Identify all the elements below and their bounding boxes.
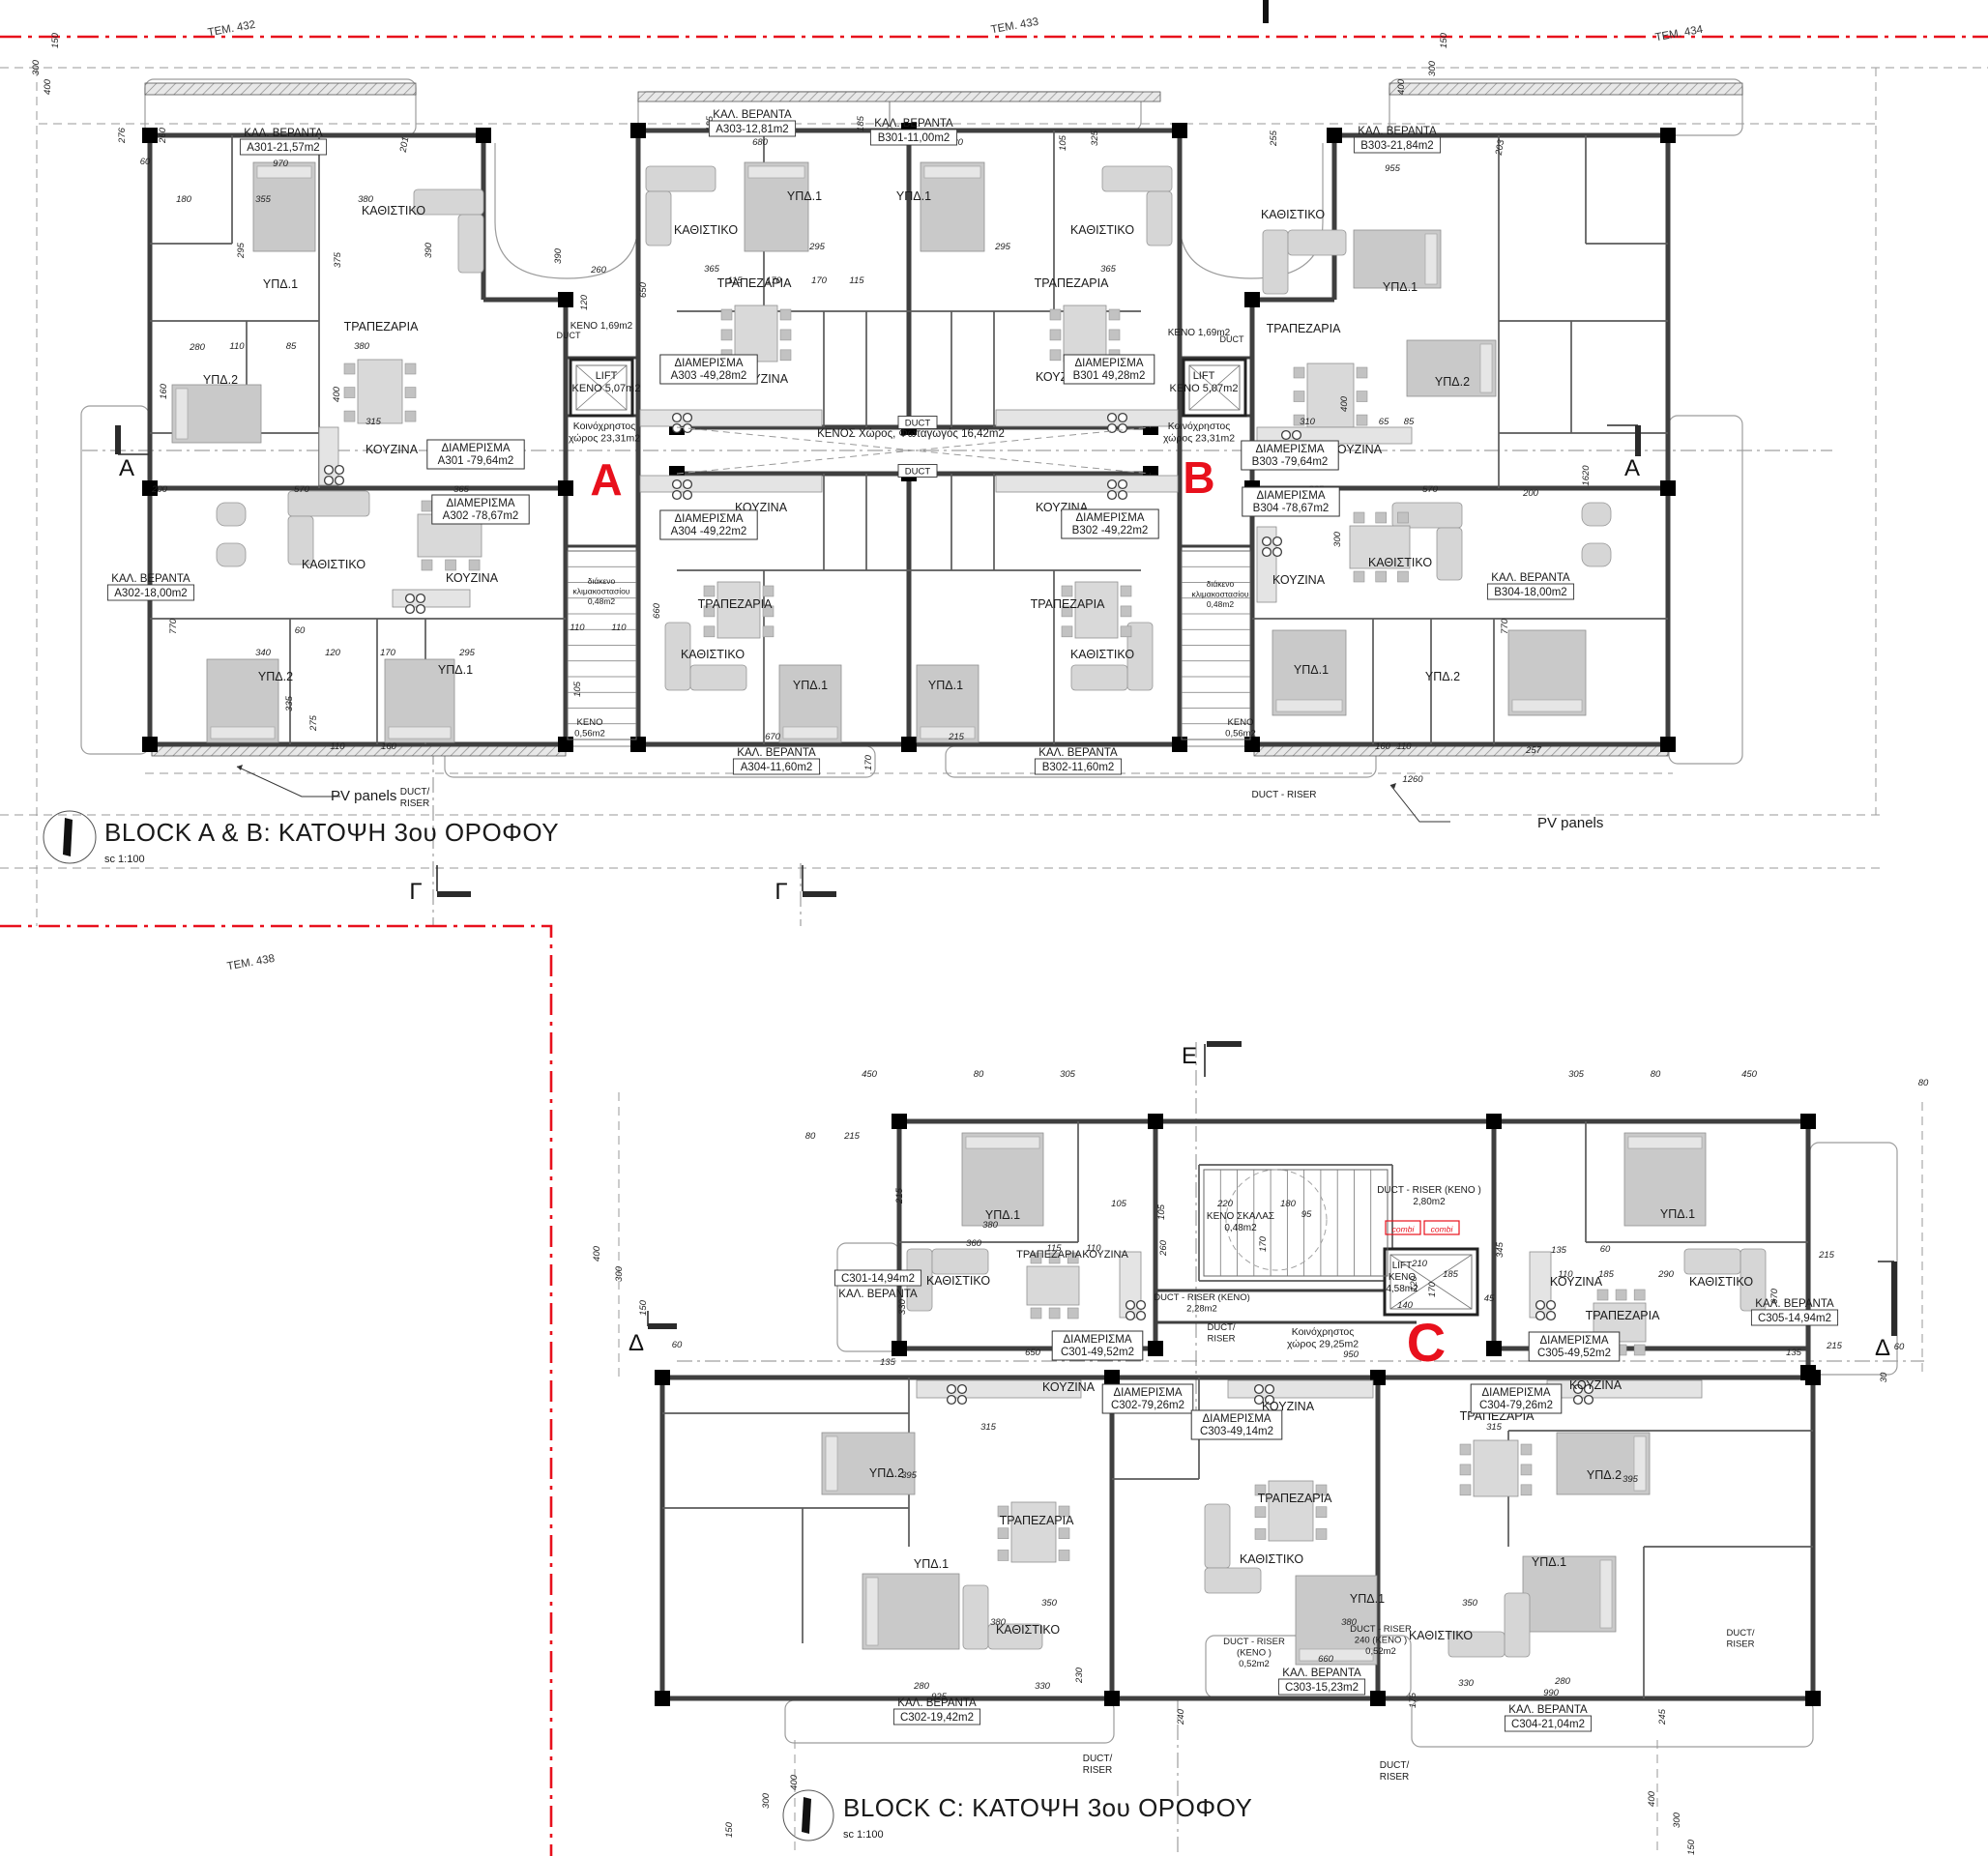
dimension-label: 400 bbox=[1396, 78, 1407, 95]
veranda-code: A304-11,60m2 bbox=[741, 762, 813, 773]
dimension-label: 180 bbox=[1280, 1199, 1297, 1209]
utility-label: DUCT - RISER bbox=[1251, 790, 1316, 800]
dimension-label: 170 bbox=[1427, 1281, 1438, 1297]
dimension-label: 60 bbox=[1600, 1244, 1611, 1255]
property-boundary bbox=[0, 926, 551, 1856]
dimension-label: 203 bbox=[1494, 138, 1507, 157]
dimension-label: 240 bbox=[1176, 1708, 1186, 1725]
dimension-label: 150 bbox=[724, 1821, 735, 1838]
apartment-label: ΔΙΑΜΕΡΙΣΜΑ bbox=[674, 358, 743, 369]
kitchen-counter bbox=[996, 410, 1178, 426]
apartment-label: C301-49,52m2 bbox=[1061, 1347, 1134, 1358]
utility-label: KENO bbox=[577, 717, 603, 728]
room-label: ΚΑΘΙΣΤΙΚΟ bbox=[1368, 556, 1432, 569]
dimension-label: 160 bbox=[381, 741, 397, 752]
dimension-label: 210 bbox=[1411, 1259, 1428, 1269]
duct-label: DUCT bbox=[905, 419, 931, 429]
apartment-label: A304 -49,22m2 bbox=[671, 526, 747, 537]
utility-label: DUCT - RISER bbox=[1350, 1624, 1412, 1635]
section-letter: E bbox=[1182, 1043, 1197, 1069]
room-label: ΚΟΥΖΙΝΑ bbox=[365, 443, 419, 456]
room-label: ΤΡΑΠΕΖΑΡΙΑ bbox=[1035, 276, 1110, 290]
utility-label: ΚΕΝΟΣ Χώρος, Φωταγωγός 16,42m2 bbox=[817, 428, 1005, 440]
utility-label: 2,28m2 bbox=[1186, 1304, 1217, 1315]
kitchen-counter bbox=[640, 410, 822, 426]
dimension-label: 215 bbox=[1818, 1250, 1835, 1261]
dimension-label: 180 bbox=[176, 194, 192, 205]
veranda-title: ΚΑΛ. ΒΕΡΑΝΤΑ bbox=[1755, 1298, 1834, 1310]
dimension-label: 295 bbox=[808, 242, 826, 252]
stamp-label: combi bbox=[1431, 1225, 1454, 1234]
apartment-label: ΔΙΑΜΕΡΙΣΜΑ bbox=[441, 443, 510, 454]
room-label: ΤΡΑΠΕΖΑΡΙΑ bbox=[1267, 322, 1342, 335]
armchair bbox=[217, 503, 246, 526]
veranda-title: ΚΑΛ. ΒΕΡΑΝΤΑ bbox=[1491, 572, 1570, 584]
dimension-label: 215 bbox=[1826, 1341, 1843, 1351]
room-label: ΥΠΔ.2 bbox=[869, 1466, 904, 1480]
dimension-label: 105 bbox=[1058, 134, 1068, 151]
apartment-label: ΔΙΑΜΕΡΙΣΜΑ bbox=[1256, 490, 1325, 502]
room-label: ΚΟΥΖΙΝΑ bbox=[1272, 573, 1326, 587]
apartment-label: ΔΙΑΜΕΡΙΣΜΑ bbox=[1539, 1335, 1608, 1347]
veranda-title: ΚΑΛ. ΒΕΡΑΝΤΑ bbox=[244, 128, 323, 139]
dimension-label: 30 bbox=[1879, 1372, 1889, 1382]
dimension-label: 160 bbox=[159, 383, 169, 399]
room-label: ΥΠΔ.1 bbox=[1660, 1207, 1695, 1221]
utility-label: διάκενο bbox=[1207, 579, 1235, 589]
dimension-label: 150 bbox=[1439, 32, 1449, 48]
dimension-label: 290 bbox=[1657, 1269, 1675, 1280]
dimension-label: 325 bbox=[1090, 130, 1100, 146]
apartment-label: A302 -78,67m2 bbox=[443, 510, 519, 522]
dimension-label: 110 bbox=[330, 741, 345, 752]
dimension-label: 365 bbox=[453, 484, 470, 495]
apartment-label: ΔΙΑΜΕΡΙΣΜΑ bbox=[674, 513, 743, 525]
veranda-code: C301-14,94m2 bbox=[841, 1273, 915, 1285]
dimension-label: 315 bbox=[980, 1422, 997, 1433]
label-layer: ΚΑΘΙΣΤΙΚΟΥΠΔ.1ΤΡΑΠΕΖΑΡΙΑΥΠΔ.2ΚΟΥΖΙΝΑΚΑΘΙ… bbox=[107, 16, 1837, 1783]
dimension-label: 60 bbox=[295, 625, 306, 636]
caption-block-c-scale: sc 1:100 bbox=[843, 1829, 1252, 1841]
utility-label: 2,80m2 bbox=[1413, 1197, 1446, 1207]
dimension-label: 305 bbox=[1568, 1069, 1585, 1080]
room-label: ΚΟΥΖΙΝΑ bbox=[1569, 1378, 1623, 1392]
dimension-label: 1260 bbox=[1402, 774, 1423, 785]
dimension-label: 105 bbox=[1156, 1203, 1167, 1220]
room-label: ΚΑΘΙΣΤΙΚΟ bbox=[1689, 1275, 1753, 1289]
utility-label: DUCT bbox=[557, 331, 581, 340]
room-label: ΚΑΘΙΣΤΙΚΟ bbox=[674, 223, 738, 237]
room-label: ΥΠΔ.2 bbox=[1435, 375, 1470, 389]
dimension-label: 95 bbox=[1301, 1209, 1312, 1220]
room-label: ΤΡΑΠΕΖΑΡΙΑ bbox=[1586, 1309, 1661, 1322]
dimension-label: 300 bbox=[1427, 60, 1438, 76]
sofa bbox=[646, 166, 716, 191]
dimension-label: 360 bbox=[966, 1238, 982, 1249]
dimension-label: 200 bbox=[1522, 488, 1539, 499]
dimension-label: 335 bbox=[284, 695, 295, 711]
floor-plan-canvas: 1503004002762606097020118518568068010532… bbox=[0, 0, 1988, 1856]
stamp-label: combi bbox=[1392, 1225, 1416, 1234]
dimension-label: 150 bbox=[50, 32, 61, 48]
sofa bbox=[1205, 1504, 1230, 1568]
veranda-code: B301-11,00m2 bbox=[878, 132, 950, 144]
room-label: ΥΠΔ.1 bbox=[914, 1557, 949, 1571]
apartment-label: ΔΙΑΜΕΡΙΣΜΑ bbox=[1075, 512, 1144, 524]
dimension-label: 450 bbox=[1741, 1069, 1758, 1080]
dimension-label: 990 bbox=[1543, 1688, 1560, 1698]
room-label: ΥΠΔ.1 bbox=[985, 1208, 1020, 1222]
dimension-label: 1620 bbox=[1581, 465, 1592, 486]
dimension-label: 105 bbox=[572, 681, 583, 697]
room-label: ΤΡΑΠΕΖΑΡΙΑ bbox=[1016, 1249, 1082, 1261]
utility-label: διάκενο bbox=[588, 576, 616, 586]
room-label: ΥΠΔ.1 bbox=[1294, 663, 1329, 677]
apartment-label: ΔΙΑΜΕΡΙΣΜΑ bbox=[446, 498, 514, 509]
utility-label: DUCT/ bbox=[1726, 1628, 1754, 1638]
dimension-label: 85 bbox=[1404, 417, 1415, 427]
dimension-label: 330 bbox=[897, 1298, 908, 1315]
dimension-label: 355 bbox=[255, 194, 272, 205]
veranda-code: A301-21,57m2 bbox=[247, 142, 319, 154]
utility-label: κλιμακοστασίου bbox=[1192, 590, 1249, 599]
dimension-label: 215 bbox=[843, 1131, 861, 1142]
dimension-label: 400 bbox=[592, 1245, 602, 1261]
dimension-label: 955 bbox=[1385, 163, 1401, 174]
utility-label: 240 (KENO ) bbox=[1355, 1636, 1407, 1646]
utility-label: 0,48m2 bbox=[1207, 599, 1235, 609]
room-label: ΥΠΔ.2 bbox=[1587, 1468, 1622, 1482]
dimension-label: 110 bbox=[229, 341, 245, 352]
room-label: ΤΡΑΠΕΖΑΡΙΑ bbox=[1000, 1514, 1075, 1527]
room-label: ΚΑΘΙΣΤΙΚΟ bbox=[1409, 1629, 1473, 1642]
caption-block-ab-scale: sc 1:100 bbox=[104, 854, 559, 865]
dimension-label: 215 bbox=[894, 1187, 905, 1204]
apartment-label: B302 -49,22m2 bbox=[1072, 525, 1149, 536]
block-letter: B bbox=[1183, 452, 1214, 503]
dimension-label: 60 bbox=[672, 1340, 683, 1350]
utility-label: 0,56m2 bbox=[1225, 729, 1256, 739]
utility-label: (KENO ) bbox=[1237, 1648, 1272, 1659]
room-label: ΚΟΥΖΙΝΑ bbox=[446, 571, 499, 585]
dimension-label: 375 bbox=[333, 251, 343, 268]
sofa bbox=[963, 1585, 988, 1649]
utility-label: 0,48m2 bbox=[588, 596, 616, 606]
dimension-label: 150 bbox=[1686, 1839, 1697, 1855]
dimension-label: 135 bbox=[1786, 1348, 1802, 1358]
apartment-label: ΔΙΑΜΕΡΙΣΜΑ bbox=[1063, 1334, 1131, 1346]
caption-block-ab-title: BLOCK A & B: ΚΑΤΟΨΗ 3ου ΟΡΟΦΟΥ bbox=[104, 818, 559, 848]
caption-block-ab: BLOCK A & B: ΚΑΤΟΨΗ 3ου ΟΡΟΦΟΥ sc 1:100 bbox=[104, 818, 559, 865]
dimension-label: 185 bbox=[856, 115, 866, 131]
dimension-label: 400 bbox=[332, 386, 342, 402]
utility-label: Κοινόχρηστος bbox=[573, 420, 636, 432]
sofa bbox=[1263, 230, 1288, 294]
room-label: ΚΑΘΙΣΤΙΚΟ bbox=[1240, 1552, 1303, 1566]
utility-label: χώρος 23,31m2 bbox=[1163, 433, 1235, 445]
apartment-label: ΔΙΑΜΕΡΙΣΜΑ bbox=[1481, 1387, 1550, 1399]
dimension-label: 390 bbox=[553, 247, 564, 264]
room-label: ΥΠΔ.1 bbox=[787, 189, 822, 203]
dimension-label: 140 bbox=[1397, 1300, 1414, 1311]
room-label: ΥΠΔ.1 bbox=[438, 663, 473, 677]
dimension-label: 350 bbox=[1041, 1598, 1058, 1609]
dimension-label: 570 bbox=[1422, 484, 1439, 495]
dimension-label: 115 bbox=[849, 275, 864, 286]
kitchen-counter bbox=[640, 476, 822, 492]
room-label: ΤΡΑΠΕΖΑΡΙΑ bbox=[717, 276, 793, 290]
dimension-label: 650 bbox=[1025, 1348, 1041, 1358]
armchair bbox=[1582, 543, 1611, 566]
block-letter: C bbox=[1407, 1312, 1446, 1373]
section-letter: Γ bbox=[775, 879, 787, 905]
dining-table bbox=[1269, 1481, 1313, 1541]
dimension-label: 200 bbox=[151, 484, 168, 495]
parcel-label: ΤΕΜ. 433 bbox=[990, 16, 1039, 36]
utility-label: 0,52m2 bbox=[1239, 1659, 1270, 1669]
dimension-label: 295 bbox=[994, 242, 1011, 252]
room-label: ΚΑΘΙΣΤΙΚΟ bbox=[996, 1623, 1060, 1637]
dimension-label: 770 bbox=[168, 618, 179, 634]
dimension-label: 295 bbox=[236, 242, 247, 259]
dimension-label: 330 bbox=[1035, 1681, 1051, 1692]
utility-label: 0,48m2 bbox=[1224, 1223, 1257, 1233]
dimension-label: 276 bbox=[117, 127, 128, 144]
utility-label: DUCT bbox=[1220, 334, 1244, 344]
dimension-label: 220 bbox=[1216, 1199, 1234, 1209]
apartment-label: ΔΙΑΜΕΡΙΣΜΑ bbox=[1074, 358, 1143, 369]
dimension-label: 280 bbox=[189, 342, 206, 353]
apartment-label: C303-49,14m2 bbox=[1200, 1426, 1273, 1437]
room-label: ΥΠΔ.1 bbox=[793, 679, 828, 692]
veranda-title: ΚΑΛ. ΒΕΡΑΝΤΑ bbox=[897, 1697, 977, 1709]
utility-label: Κοινόχρηστος bbox=[1292, 1326, 1355, 1338]
dimension-label: 260 bbox=[590, 265, 607, 275]
dimension-label: 315 bbox=[1486, 1422, 1503, 1433]
dimension-label: 305 bbox=[1060, 1069, 1076, 1080]
dimension-label: 110 bbox=[1396, 741, 1412, 752]
room-label: ΚΑΘΙΣΤΙΚΟ bbox=[302, 558, 365, 571]
room-label: ΚΑΘΙΣΤΙΚΟ bbox=[1070, 223, 1134, 237]
dimension-label: 300 bbox=[1672, 1812, 1682, 1828]
dimension-label: 300 bbox=[31, 59, 42, 75]
utility-label: RISER bbox=[1380, 1772, 1410, 1783]
armchair bbox=[217, 543, 246, 566]
room-label: ΥΠΔ.1 bbox=[263, 277, 298, 291]
dining-table bbox=[1011, 1502, 1056, 1562]
room-label: ΤΡΑΠΕΖΑΡΙΑ bbox=[344, 320, 420, 333]
dimension-label: 215 bbox=[948, 732, 965, 742]
dimension-label: 570 bbox=[294, 484, 310, 495]
room-label: ΥΠΔ.1 bbox=[896, 189, 931, 203]
veranda-code: C302-19,42m2 bbox=[900, 1712, 974, 1724]
dimension-label: 135 bbox=[1551, 1245, 1567, 1256]
veranda-title: ΚΑΛ. ΒΕΡΑΝΤΑ bbox=[1358, 126, 1437, 137]
room-label: ΥΠΔ.2 bbox=[1425, 670, 1460, 683]
sofa bbox=[1205, 1568, 1261, 1593]
dining-table bbox=[1064, 305, 1106, 362]
utility-label: χώρος 29,25m2 bbox=[1287, 1339, 1359, 1350]
dimension-label: 85 bbox=[286, 341, 297, 352]
dimension-label: 280 bbox=[1554, 1676, 1571, 1687]
parcel-label: ΤΕΜ. 434 bbox=[1654, 24, 1705, 44]
dimension-label: 295 bbox=[458, 648, 476, 658]
boundary-layer bbox=[0, 0, 1988, 1856]
dimension-label: 105 bbox=[1111, 1199, 1127, 1209]
dimension-label: 245 bbox=[1657, 1708, 1668, 1725]
room-label: ΥΠΔ.1 bbox=[1383, 280, 1418, 294]
utility-label: DUCT/ bbox=[400, 787, 430, 797]
sofa bbox=[690, 665, 746, 690]
kitchen-counter bbox=[393, 590, 470, 607]
apartment-label: C304-79,26m2 bbox=[1479, 1400, 1553, 1411]
section-letter: A bbox=[1624, 455, 1640, 481]
dimension-label: 650 bbox=[638, 281, 649, 298]
utility-label: 0,52m2 bbox=[1365, 1646, 1396, 1657]
room-label: ΤΡΑΠΕΖΑΡΙΑ bbox=[698, 597, 774, 611]
apartment-label: C305-49,52m2 bbox=[1537, 1348, 1611, 1359]
kitchen-counter bbox=[996, 476, 1178, 492]
utility-label: Κοινόχρηστος bbox=[1168, 420, 1231, 432]
kitchen-counter bbox=[1228, 1380, 1373, 1398]
sofa bbox=[1437, 528, 1462, 580]
veranda-title: ΚΑΛ. ΒΕΡΑΝΤΑ bbox=[1038, 747, 1118, 759]
dimension-label: 260 bbox=[1158, 1239, 1169, 1257]
utility-label: DUCT/ bbox=[1380, 1760, 1410, 1771]
room-label: ΚΟΥΖΙΝΑ bbox=[1042, 1380, 1096, 1394]
dimension-label: 450 bbox=[862, 1069, 878, 1080]
pv-panels-label: PV panels bbox=[1537, 815, 1603, 831]
utility-label: ΚΕΝΟ ΣΚΑΛΑΣ bbox=[1207, 1211, 1274, 1222]
dimension-label: 400 bbox=[789, 1774, 800, 1790]
sofa bbox=[458, 215, 483, 273]
dimension-label: 170 bbox=[811, 275, 828, 286]
veranda-title: ΚΑΛ. ΒΕΡΑΝΤΑ bbox=[1508, 1704, 1588, 1716]
veranda-title: ΚΑΛ. ΒΕΡΑΝΤΑ bbox=[838, 1289, 918, 1300]
room-label: ΥΠΔ.1 bbox=[928, 679, 963, 692]
room-label: ΚΟΥΖΙΝΑ bbox=[1082, 1249, 1128, 1261]
dimension-label: 670 bbox=[765, 732, 781, 742]
dimension-label: 365 bbox=[704, 264, 720, 275]
veranda-code: B304-18,00m2 bbox=[1494, 587, 1566, 598]
utility-label: DUCT - RISER (KENO ) bbox=[1377, 1185, 1481, 1196]
utility-label: KENO 5,07m2 bbox=[572, 383, 641, 394]
armchair bbox=[1582, 503, 1611, 526]
apartment-label: A303 -49,28m2 bbox=[671, 370, 747, 382]
dimension-label: 950 bbox=[1343, 1349, 1359, 1360]
veranda-title: ΚΑΛ. ΒΕΡΑΝΤΑ bbox=[737, 747, 816, 759]
apartment-label: ΔΙΑΜΕΡΙΣΜΑ bbox=[1113, 1387, 1182, 1399]
utility-label: RISER bbox=[1207, 1334, 1235, 1345]
dimension-label: 185 bbox=[1443, 1269, 1459, 1280]
dimension-label: 175 bbox=[1408, 1692, 1418, 1708]
veranda-title: ΚΑΛ. ΒΕΡΑΝΤΑ bbox=[874, 118, 953, 130]
veranda-title: ΚΑΛ. ΒΕΡΑΝΤΑ bbox=[111, 573, 190, 585]
dimension-label: 120 bbox=[325, 648, 341, 658]
caption-block-c-title: BLOCK C: ΚΑΤΟΨΗ 3ου ΟΡΟΦΟΥ bbox=[843, 1793, 1252, 1823]
dimension-label: 400 bbox=[1647, 1790, 1657, 1807]
utility-label: LIFT bbox=[1392, 1261, 1413, 1271]
dimension-label: 230 bbox=[1074, 1667, 1085, 1684]
dimension-label: 160 bbox=[1375, 741, 1391, 752]
dimension-label: 255 bbox=[1269, 130, 1279, 147]
dimension-label: 170 bbox=[1258, 1235, 1269, 1252]
apartment-label: ΔΙΑΜΕΡΙΣΜΑ bbox=[1255, 444, 1324, 455]
dimension-label: 110 bbox=[570, 623, 585, 633]
dimension-label: 300 bbox=[614, 1265, 625, 1282]
utility-label: KENO bbox=[1228, 717, 1254, 728]
dimension-label: 80 bbox=[974, 1069, 984, 1080]
veranda-code: A303-12,81m2 bbox=[716, 124, 788, 135]
pv-panels-label: PV panels bbox=[331, 788, 396, 804]
dimension-label: 770 bbox=[1500, 618, 1510, 634]
dining-table bbox=[358, 360, 402, 423]
dimension-label: 350 bbox=[1462, 1598, 1478, 1609]
utility-label: KENO 5,07m2 bbox=[1170, 383, 1239, 394]
utility-label: LIFT bbox=[596, 370, 618, 382]
utility-label: 0,56m2 bbox=[574, 729, 605, 739]
utility-label: χώρος 23,31m2 bbox=[569, 433, 640, 445]
dimension-label: 330 bbox=[1458, 1678, 1475, 1689]
sofa bbox=[1684, 1249, 1740, 1274]
room-label: ΚΑΘΙΣΤΙΚΟ bbox=[926, 1274, 990, 1288]
dining-table bbox=[1027, 1266, 1079, 1305]
dimension-label: 60 bbox=[140, 157, 151, 167]
utility-label: RISER bbox=[1726, 1639, 1754, 1650]
dimension-label: 660 bbox=[1318, 1654, 1334, 1665]
dimension-label: 365 bbox=[1100, 264, 1117, 275]
dimension-label: 380 bbox=[354, 341, 370, 352]
sofa bbox=[1071, 665, 1127, 690]
sofa bbox=[646, 191, 671, 246]
veranda-title: ΚΑΛ. ΒΕΡΑΝΤΑ bbox=[713, 109, 792, 121]
veranda-code: C305-14,94m2 bbox=[1758, 1313, 1831, 1324]
utility-label: 4,58m2 bbox=[1386, 1284, 1418, 1294]
dimension-label: 80 bbox=[1918, 1078, 1929, 1088]
utility-label: KENO bbox=[1389, 1272, 1417, 1283]
dimension-label: 135 bbox=[880, 1357, 896, 1368]
dimension-label: 400 bbox=[1339, 395, 1350, 412]
utility-label: RISER bbox=[400, 798, 430, 809]
room-label: ΚΑΘΙΣΤΙΚΟ bbox=[681, 648, 745, 661]
dining-table bbox=[735, 305, 777, 362]
dimension-label: 310 bbox=[1300, 417, 1316, 427]
apartment-label: A301 -79,64m2 bbox=[438, 455, 514, 467]
dimension-label: 170 bbox=[863, 754, 874, 770]
dimension-label: 45 bbox=[1484, 1293, 1495, 1304]
dimension-label: 60 bbox=[1894, 1342, 1905, 1352]
dimension-label: 340 bbox=[255, 648, 272, 658]
room-label: ΥΠΔ.2 bbox=[203, 373, 238, 387]
dimension-label: 300 bbox=[761, 1792, 772, 1809]
utility-label: DUCT - RISER bbox=[1223, 1637, 1285, 1647]
dimension-label: 170 bbox=[380, 648, 396, 658]
dimension-label: 390 bbox=[424, 242, 434, 258]
veranda-code: C304-21,04m2 bbox=[1511, 1719, 1585, 1730]
room-label: ΚΑΘΙΣΤΙΚΟ bbox=[1261, 208, 1325, 221]
dimension-label: 400 bbox=[43, 78, 53, 95]
dimension-label: 260 bbox=[158, 127, 168, 144]
utility-label: LIFT bbox=[1193, 370, 1215, 382]
duct-label: DUCT bbox=[905, 467, 931, 478]
dimension-label: 201 bbox=[398, 136, 412, 155]
room-label: ΚΟΥΖΙΝΑ bbox=[1550, 1275, 1603, 1289]
section-letter: Δ bbox=[1875, 1335, 1890, 1361]
dimension-label: 275 bbox=[308, 714, 319, 732]
room-label: ΥΠΔ.2 bbox=[258, 670, 293, 683]
caption-block-c: BLOCK C: ΚΑΤΟΨΗ 3ου ΟΡΟΦΟΥ sc 1:100 bbox=[843, 1793, 1252, 1841]
room-label: ΤΡΑΠΕΖΑΡΙΑ bbox=[1258, 1492, 1333, 1505]
